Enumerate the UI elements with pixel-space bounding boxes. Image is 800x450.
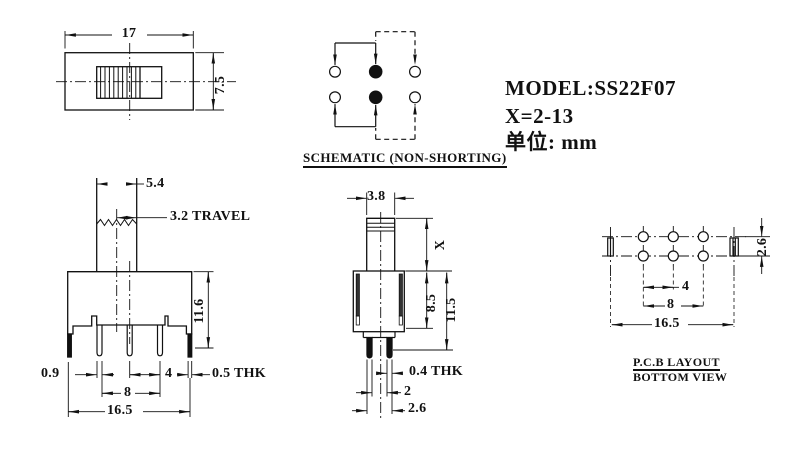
common-terminal [370, 66, 382, 78]
dim-tab-thickness: 0.5 THK [212, 367, 266, 381]
schematic-view [330, 32, 421, 140]
dim-total-height: 11.5 [445, 280, 461, 340]
dimensions [612, 218, 770, 325]
drawing-sheet: 17 7.5 SCHEMATIC (NON-SHORTING) MODEL:SS… [0, 0, 800, 450]
top-view [56, 31, 236, 120]
terminal-circles [330, 66, 421, 104]
dim-top-width: 17 [114, 27, 144, 41]
units-note: 单位: mm [505, 132, 597, 153]
mount-tab [188, 334, 192, 357]
dim-pin-width: 0.9 [41, 367, 59, 381]
dashed-position-links [376, 32, 415, 140]
dim-knob-height-x: X [434, 215, 450, 275]
dim-body-width: 16.5 [107, 404, 133, 418]
mount-tab [68, 334, 72, 357]
dim-pin-thickness: 0.4 THK [409, 365, 463, 379]
bottom-stub [363, 332, 395, 338]
dim-knob-depth: 3.8 [367, 190, 385, 204]
pcb-caption-line1: P.C.B LAYOUT [633, 356, 720, 371]
pin [367, 338, 372, 358]
dim-pin-gap: 2 [404, 385, 411, 399]
dim-travel: 3.2 TRAVEL [170, 210, 250, 224]
dim-top-height: 7.5 [214, 55, 230, 115]
dim-pin-span: 8 [124, 386, 131, 400]
dim-front-height: 11.6 [193, 281, 209, 341]
dim-pcb-hole-span: 8 [667, 298, 674, 312]
dim-knob-width: 5.4 [146, 177, 164, 191]
knob-serration [101, 67, 136, 99]
common-terminal [370, 91, 382, 103]
pcb-caption-line2: BOTTOM VIEW [633, 371, 727, 383]
x-range: X=2-13 [505, 106, 574, 127]
schematic-caption: SCHEMATIC (NON-SHORTING) [303, 151, 507, 168]
pin [387, 338, 392, 358]
solid-position-links [335, 43, 376, 127]
centerlines [56, 43, 236, 120]
dim-pin-row-span: 2.6 [408, 402, 426, 416]
dim-body-height: 8.5 [425, 273, 441, 333]
dim-pin-pitch: 4 [165, 367, 172, 381]
dim-pcb-overall-width: 16.5 [654, 317, 680, 331]
dim-pcb-row-pitch: 2.6 [756, 217, 772, 277]
centerlines [117, 209, 130, 344]
model-number: MODEL:SS22F07 [505, 78, 676, 99]
pcb-layout-view [602, 218, 770, 327]
dim-pcb-hole-pitch: 4 [682, 280, 689, 294]
